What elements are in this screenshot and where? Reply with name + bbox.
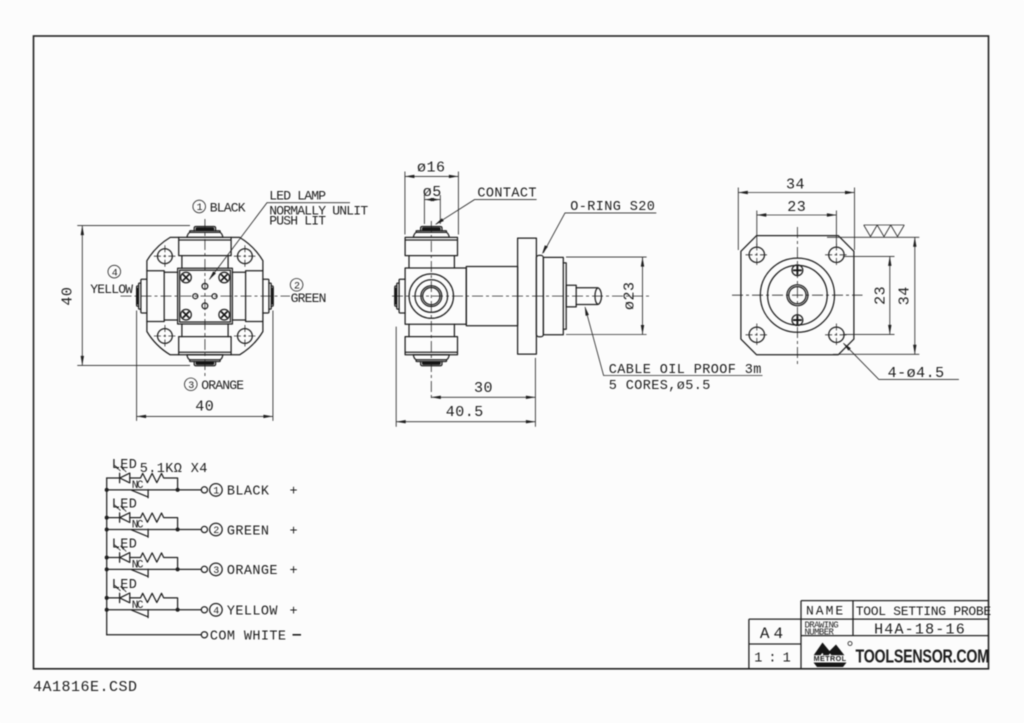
- svg-text:+: +: [290, 605, 299, 620]
- svg-text:40: 40: [60, 287, 77, 306]
- svg-text:LED: LED: [112, 578, 138, 593]
- svg-text:4: 4: [112, 268, 118, 279]
- svg-text:5.1KΩ X4: 5.1KΩ X4: [140, 462, 208, 477]
- svg-text:TOOLSENSOR.COM: TOOLSENSOR.COM: [856, 647, 989, 667]
- svg-text:4: 4: [213, 606, 219, 617]
- svg-text:30: 30: [474, 380, 493, 397]
- svg-text:23: 23: [787, 199, 806, 216]
- svg-text:3: 3: [213, 566, 219, 577]
- svg-text:+: +: [290, 564, 299, 579]
- svg-text:BLACK: BLACK: [227, 485, 270, 500]
- svg-text:40.5: 40.5: [446, 404, 484, 421]
- svg-text:A4: A4: [760, 625, 787, 643]
- svg-text:LED: LED: [112, 537, 138, 552]
- svg-text:ORANGE: ORANGE: [227, 564, 278, 579]
- svg-text:YELLOW: YELLOW: [227, 605, 279, 620]
- svg-text:+: +: [290, 524, 299, 539]
- svg-text:H4A-18-16: H4A-18-16: [874, 621, 966, 638]
- svg-text:COM WHITE: COM WHITE: [210, 630, 287, 645]
- svg-text:3: 3: [188, 381, 194, 392]
- svg-text:34: 34: [786, 176, 805, 193]
- svg-text:LED LAMP: LED LAMP: [269, 189, 326, 204]
- svg-text:TOOL SETTING PROBE: TOOL SETTING PROBE: [856, 604, 992, 619]
- svg-text:1: 1: [213, 487, 219, 498]
- svg-text:YELLOW: YELLOW: [90, 282, 133, 297]
- svg-text:34: 34: [896, 286, 913, 305]
- svg-text:PUSH LIT: PUSH LIT: [269, 214, 326, 229]
- svg-text:4A1816E.CSD: 4A1816E.CSD: [33, 679, 138, 696]
- svg-text:BLACK: BLACK: [210, 200, 246, 215]
- svg-text:NAME: NAME: [806, 604, 845, 619]
- svg-text:+: +: [290, 485, 299, 500]
- svg-text:2: 2: [213, 526, 219, 537]
- svg-text:ø23: ø23: [622, 282, 639, 311]
- svg-text:1: 1: [197, 203, 203, 214]
- svg-text:23: 23: [873, 286, 890, 305]
- svg-text:METROL: METROL: [814, 654, 847, 663]
- svg-text:ø16: ø16: [417, 160, 446, 177]
- svg-text:1 : 1: 1 : 1: [754, 652, 790, 667]
- svg-text:40: 40: [195, 398, 214, 415]
- svg-text:LED: LED: [112, 498, 138, 513]
- svg-text:5 CORES,ø5.5: 5 CORES,ø5.5: [609, 379, 711, 394]
- svg-text:ORANGE: ORANGE: [201, 378, 244, 393]
- svg-text:NUMBER: NUMBER: [805, 628, 835, 638]
- svg-text:GREEN: GREEN: [227, 524, 270, 539]
- svg-text:GREEN: GREEN: [291, 291, 326, 306]
- svg-text:LED: LED: [112, 458, 138, 473]
